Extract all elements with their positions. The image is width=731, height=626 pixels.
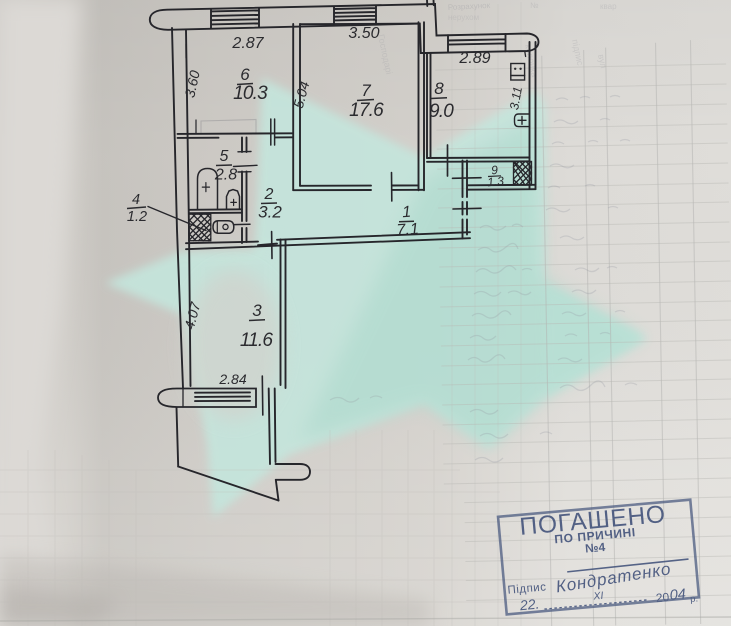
svg-text:1.2: 1.2: [127, 209, 147, 225]
svg-text:2.87: 2.87: [231, 35, 264, 52]
svg-text:4: 4: [132, 192, 140, 208]
svg-text:20: 20: [655, 590, 670, 605]
svg-text:22.: 22.: [518, 596, 540, 614]
svg-text:квар: квар: [600, 2, 617, 11]
svg-text:17.6: 17.6: [349, 100, 384, 121]
svg-text:2: 2: [264, 186, 274, 203]
svg-text:2.89: 2.89: [458, 50, 490, 67]
svg-text:№4: №4: [585, 540, 607, 556]
svg-text:10.3: 10.3: [233, 83, 268, 104]
svg-text:1: 1: [402, 204, 412, 222]
svg-text:1.3: 1.3: [487, 174, 505, 190]
svg-text:3.50: 3.50: [348, 25, 379, 42]
svg-text:9.0: 9.0: [429, 101, 454, 122]
svg-text:3.2: 3.2: [258, 203, 282, 222]
svg-text:04: 04: [669, 586, 686, 603]
svg-text:8: 8: [434, 79, 444, 98]
svg-text:7: 7: [361, 81, 371, 100]
svg-text:XI: XI: [592, 590, 604, 603]
svg-text:5: 5: [220, 148, 229, 165]
svg-text:7.1: 7.1: [396, 221, 419, 240]
svg-text:2.8: 2.8: [214, 167, 237, 184]
svg-text:3: 3: [252, 301, 262, 320]
svg-text:11.6: 11.6: [240, 330, 274, 351]
svg-text:р.: р.: [690, 593, 699, 605]
svg-text:6: 6: [240, 65, 250, 84]
svg-text:2.84: 2.84: [218, 371, 246, 387]
svg-text:№: №: [530, 1, 539, 10]
svg-text:нерухом: нерухом: [448, 13, 479, 22]
